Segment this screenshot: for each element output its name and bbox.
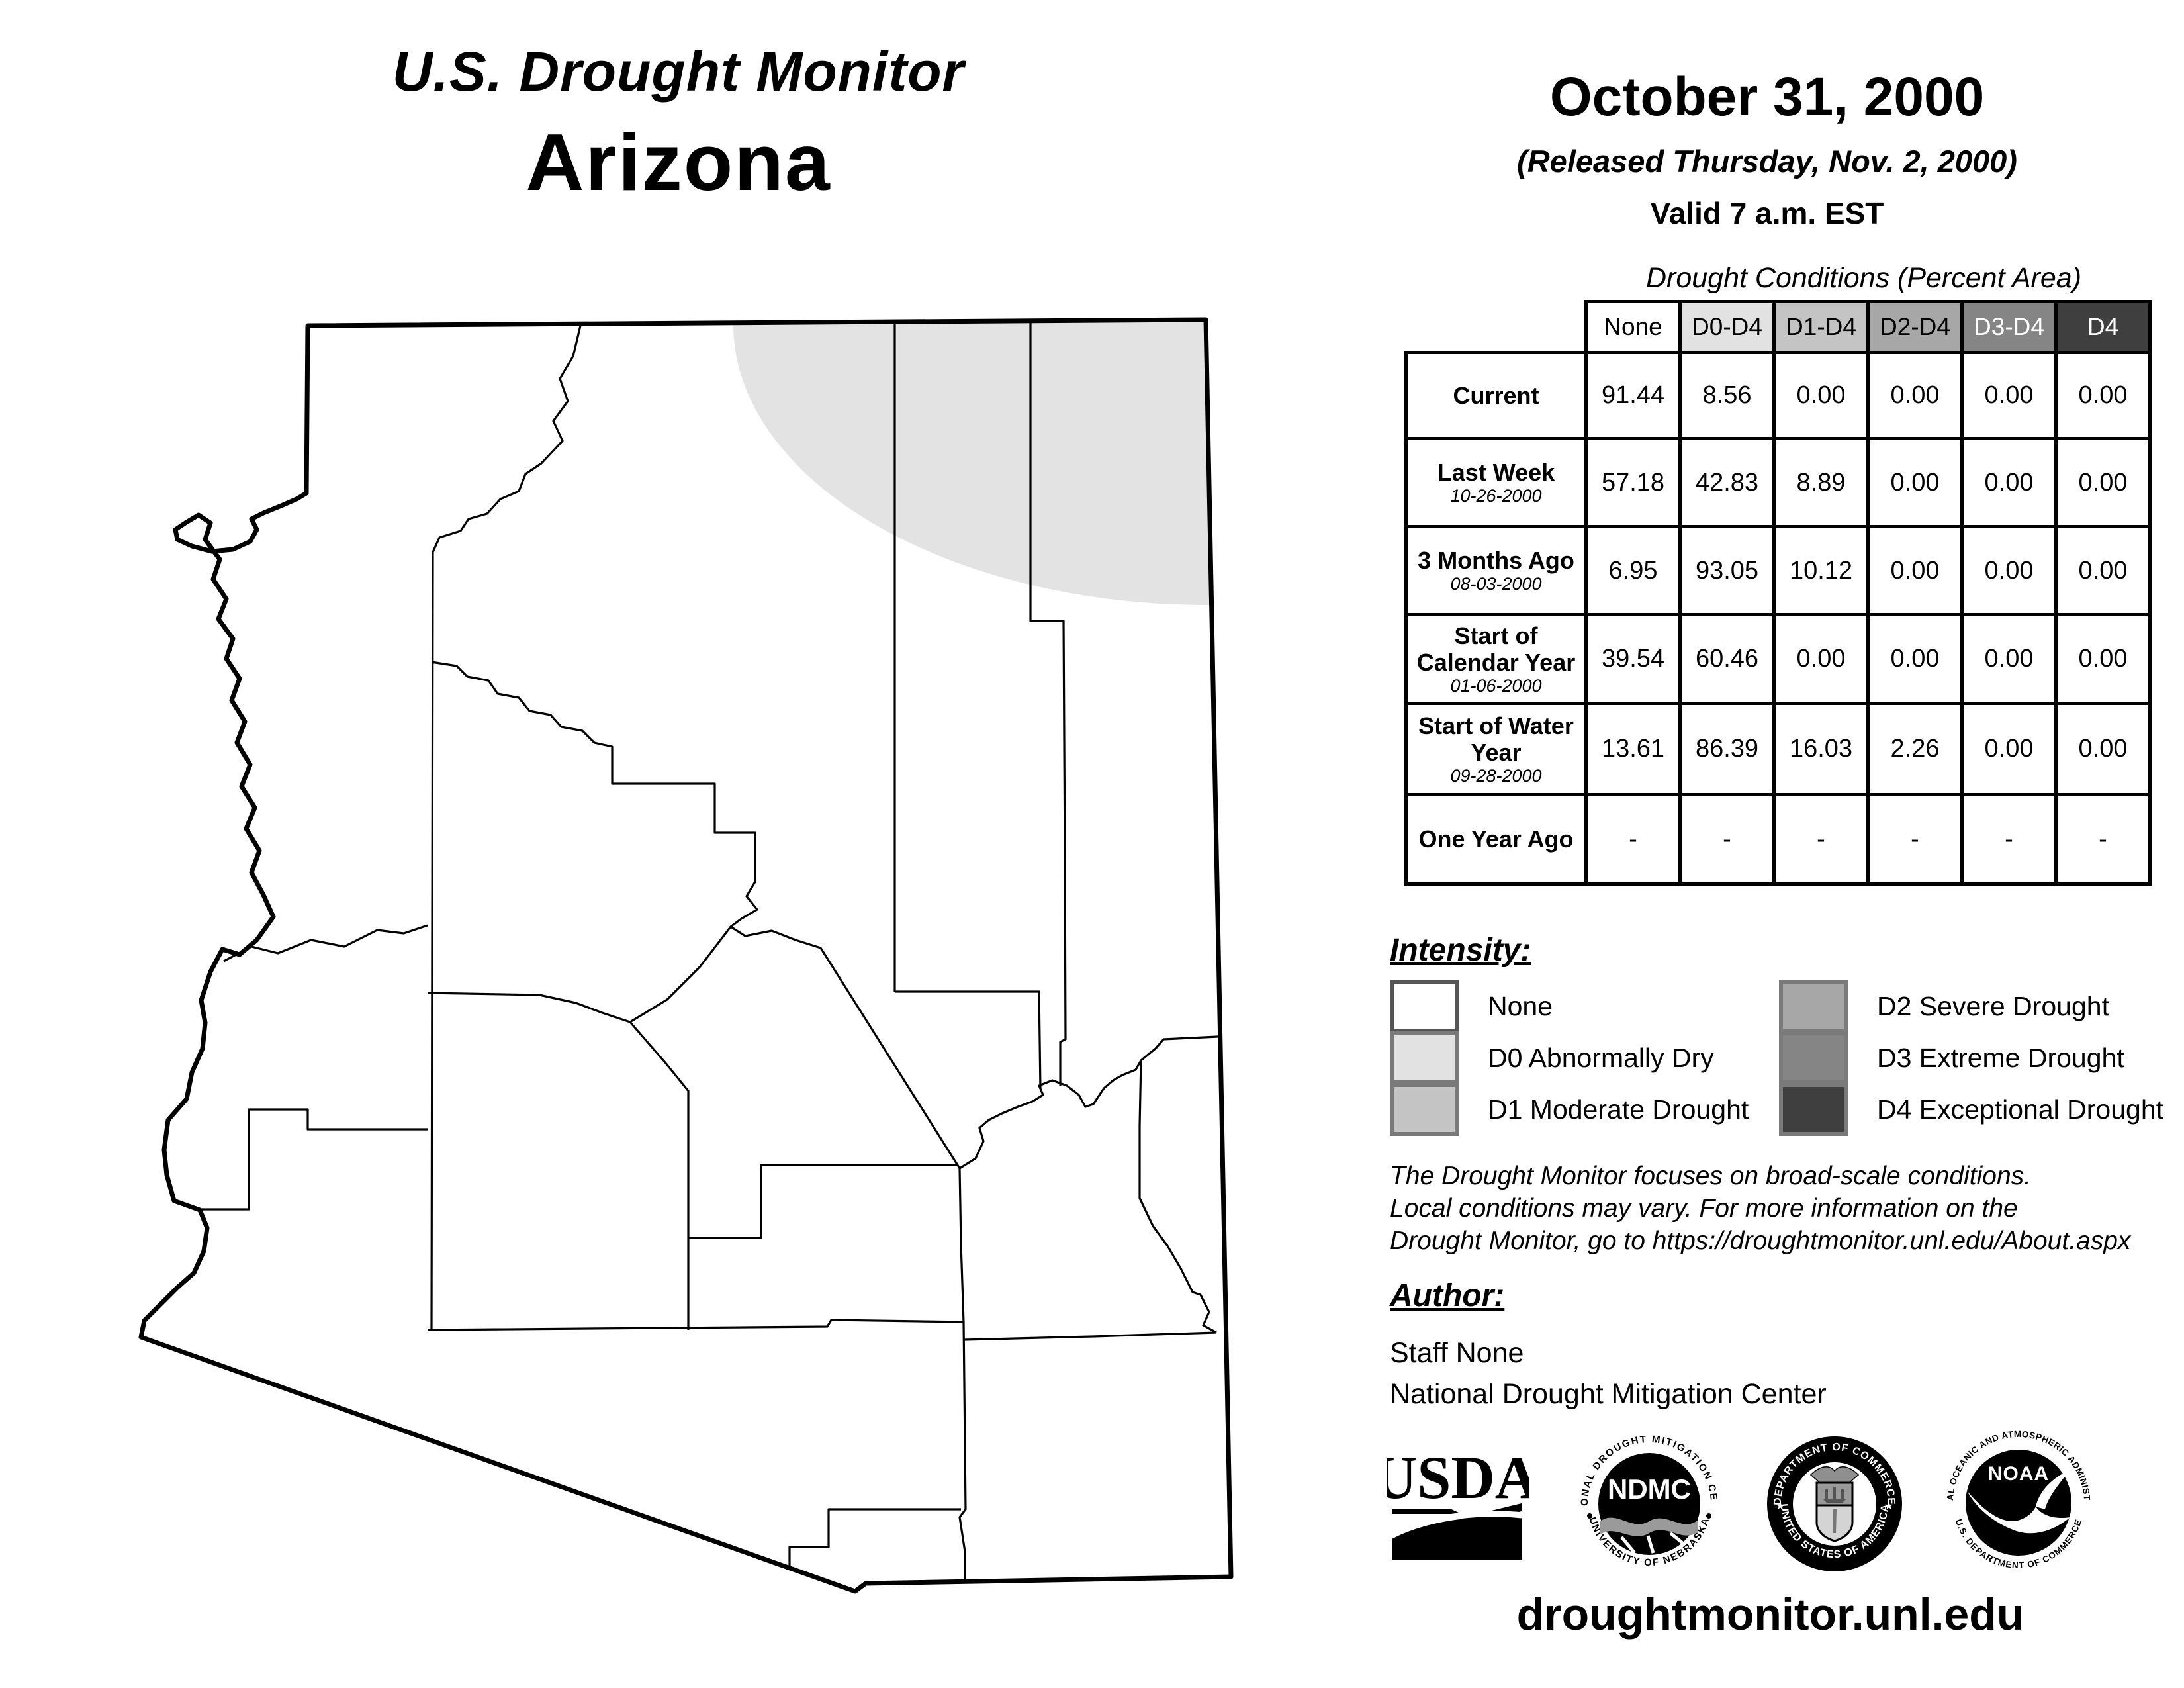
value-cell: 10.12 — [1774, 527, 1868, 615]
row-label: 3 Months Ago — [1408, 547, 1584, 574]
value-cell: 0.00 — [1868, 439, 1962, 527]
row-label-cell: One Year Ago — [1406, 795, 1586, 884]
commerce-seal: DEPARTMENT OF COMMERCE UNITED STATES OF … — [1762, 1431, 1907, 1577]
table-row: Last Week 10-26-2000 57.18 42.83 8.89 0.… — [1406, 439, 2150, 527]
row-label-cell: Start of Calendar Year 01-06-2000 — [1406, 615, 1586, 704]
footer-url: droughtmonitor.unl.edu — [1509, 1589, 2032, 1640]
commerce-lighthouse — [1833, 1509, 1837, 1533]
value-cell: - — [1680, 795, 1774, 884]
legend-label: D1 Moderate Drought — [1488, 1083, 1749, 1136]
table-header-row: None D0-D4 D1-D4 D2-D4 D3-D4 D4 — [1406, 302, 2150, 353]
row-label-cell: Current — [1406, 353, 1586, 439]
author-organization: National Drought Mitigation Center — [1390, 1378, 1827, 1411]
legend-label: D0 Abnormally Dry — [1488, 1031, 1714, 1084]
row-label: Start of Water Year — [1408, 713, 1584, 766]
value-cell: 0.00 — [1962, 615, 2056, 704]
value-cell: 91.44 — [1586, 353, 1680, 439]
row-label: Last Week — [1408, 459, 1584, 486]
ndmc-dot-right — [1706, 1513, 1711, 1519]
value-cell: 0.00 — [1868, 615, 1962, 704]
value-cell: 0.00 — [1774, 615, 1868, 704]
disclaimer-line: Local conditions may vary. For more info… — [1390, 1192, 2177, 1225]
table-title: Drought Conditions (Percent Area) — [1595, 262, 2132, 295]
table-row: Start of Calendar Year 01-06-2000 39.54 … — [1406, 615, 2150, 704]
header-d2-d4: D2-D4 — [1868, 302, 1962, 353]
row-label: Start of Calendar Year — [1408, 623, 1584, 676]
header-d0-d4: D0-D4 — [1680, 302, 1774, 353]
table-row: Start of Water Year 09-28-2000 13.61 86.… — [1406, 704, 2150, 795]
commerce-shield — [1817, 1483, 1852, 1541]
row-date: 09-28-2000 — [1408, 766, 1584, 786]
value-cell: 93.05 — [1680, 527, 1774, 615]
header-none: None — [1586, 302, 1680, 353]
table-row: 3 Months Ago 08-03-2000 6.95 93.05 10.12… — [1406, 527, 2150, 615]
legend-label: None — [1488, 980, 1553, 1033]
value-cell: 0.00 — [1868, 353, 1962, 439]
author-heading: Author: — [1390, 1278, 1504, 1314]
value-cell: 0.00 — [1962, 704, 2056, 795]
commerce-star-right: ★ — [1884, 1501, 1893, 1512]
ndmc-wordmark: NDMC — [1608, 1474, 1691, 1505]
ndmc-dot-left — [1587, 1513, 1592, 1519]
usda-wordmark: USDA — [1387, 1446, 1529, 1511]
d4-swatch — [1779, 1083, 1848, 1136]
d3-swatch — [1779, 1031, 1848, 1084]
row-label: Current — [1408, 383, 1584, 409]
none-swatch — [1390, 980, 1459, 1033]
legend-label: D3 Extreme Drought — [1877, 1031, 2124, 1084]
value-cell: 13.61 — [1586, 704, 1680, 795]
row-label: One Year Ago — [1408, 826, 1584, 853]
release-date: (Released Thursday, Nov. 2, 2000) — [1430, 143, 2105, 179]
value-cell: - — [1586, 795, 1680, 884]
value-cell: 0.00 — [2056, 439, 2150, 527]
row-label-cell: Start of Water Year 09-28-2000 — [1406, 704, 1586, 795]
value-cell: 42.83 — [1680, 439, 1774, 527]
region-title: Arizona — [165, 116, 1191, 209]
table-row: One Year Ago - - - - - - — [1406, 795, 2150, 884]
header-d4: D4 — [2056, 302, 2150, 353]
value-cell: - — [1868, 795, 1962, 884]
drought-conditions-table: None D0-D4 D1-D4 D2-D4 D3-D4 D4 Current … — [1404, 300, 2152, 886]
row-label-cell: Last Week 10-26-2000 — [1406, 439, 1586, 527]
value-cell: 0.00 — [1962, 439, 2056, 527]
header-d1-d4: D1-D4 — [1774, 302, 1868, 353]
value-cell: 57.18 — [1586, 439, 1680, 527]
date-block: October 31, 2000 (Released Thursday, Nov… — [1430, 66, 2105, 231]
program-title: U.S. Drought Monitor — [165, 40, 1191, 104]
disclaimer-line: The Drought Monitor focuses on broad-sca… — [1390, 1160, 2177, 1192]
value-cell: 2.26 — [1868, 704, 1962, 795]
value-cell: - — [1774, 795, 1868, 884]
value-cell: 0.00 — [1774, 353, 1868, 439]
row-date: 01-06-2000 — [1408, 676, 1584, 696]
legend-label: D2 Severe Drought — [1877, 980, 2109, 1033]
legend-heading: Intensity: — [1390, 932, 1531, 968]
noaa-logo: NATIONAL OCEANIC AND ATMOSPHERIC ADMINIS… — [1942, 1427, 2095, 1579]
value-cell: 16.03 — [1774, 704, 1868, 795]
value-cell: 0.00 — [1962, 353, 2056, 439]
disclaimer-text: The Drought Monitor focuses on broad-sca… — [1390, 1160, 2177, 1257]
row-date: 10-26-2000 — [1408, 486, 1584, 506]
value-cell: 0.00 — [2056, 527, 2150, 615]
valid-time: Valid 7 a.m. EST — [1430, 195, 2105, 231]
d2-swatch — [1779, 980, 1848, 1033]
d1-swatch — [1390, 1083, 1459, 1136]
arizona-drought-map — [129, 311, 1248, 1628]
value-cell: - — [2056, 795, 2150, 884]
value-cell: 8.89 — [1774, 439, 1868, 527]
commerce-star-left: ★ — [1776, 1501, 1785, 1512]
ndmc-logo: NATIONAL DROUGHT MITIGATION CENTER UNIVE… — [1576, 1431, 1722, 1577]
header-d3-d4: D3-D4 — [1962, 302, 2056, 353]
value-cell: - — [1962, 795, 2056, 884]
header-blank-cell — [1406, 302, 1586, 353]
value-cell: 0.00 — [2056, 704, 2150, 795]
d0-swatch — [1390, 1031, 1459, 1084]
value-cell: 6.95 — [1586, 527, 1680, 615]
drought-monitor-report-page: { "title": { "program": "U.S. Drought Mo… — [0, 0, 2184, 1688]
row-date: 08-03-2000 — [1408, 574, 1584, 594]
value-cell: 0.00 — [2056, 353, 2150, 439]
usda-logo: USDA — [1387, 1446, 1529, 1562]
author-name: Staff None — [1390, 1337, 1524, 1370]
value-cell: 0.00 — [2056, 615, 2150, 704]
table-row: Current 91.44 8.56 0.00 0.00 0.00 0.00 — [1406, 353, 2150, 439]
row-label-cell: 3 Months Ago 08-03-2000 — [1406, 527, 1586, 615]
disclaimer-line: Drought Monitor, go to https://droughtmo… — [1390, 1225, 2177, 1257]
report-title: U.S. Drought Monitor Arizona — [165, 40, 1191, 209]
value-cell: 0.00 — [1868, 527, 1962, 615]
map-date: October 31, 2000 — [1430, 66, 2105, 128]
value-cell: 39.54 — [1586, 615, 1680, 704]
value-cell: 8.56 — [1680, 353, 1774, 439]
noaa-wordmark: NOAA — [1988, 1463, 2049, 1485]
value-cell: 60.46 — [1680, 615, 1774, 704]
value-cell: 0.00 — [1962, 527, 2056, 615]
value-cell: 86.39 — [1680, 704, 1774, 795]
legend-label: D4 Exceptional Drought — [1877, 1083, 2163, 1136]
